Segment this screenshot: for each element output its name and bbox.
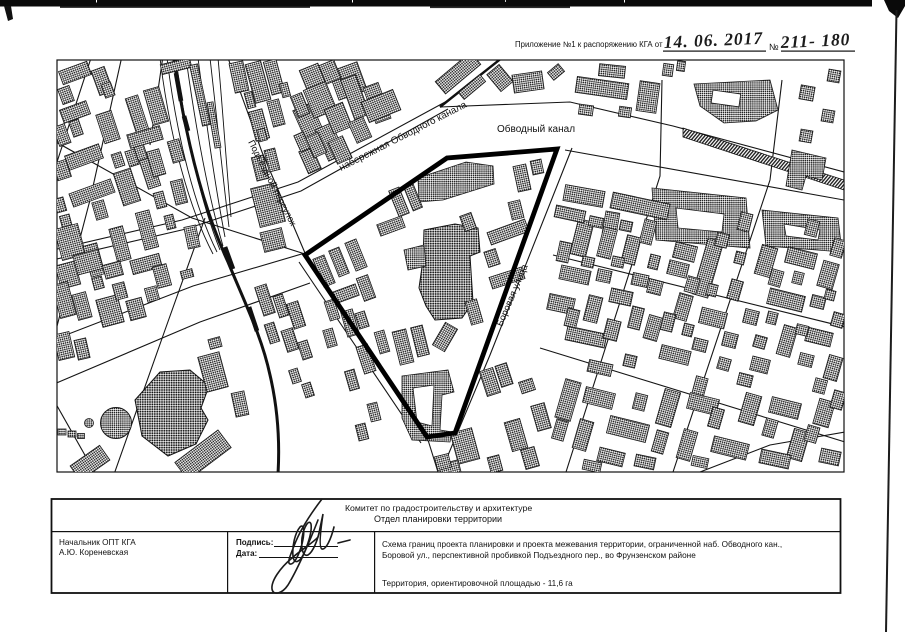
svg-text:Комитет по градостроительству: Комитет по градостроительству и архитект… — [345, 503, 532, 513]
svg-text:Боровой ул., перспективной про: Боровой ул., перспективной пробивкой Под… — [382, 551, 696, 560]
svg-text:211- 180: 211- 180 — [779, 29, 851, 52]
svg-text:Дата:: Дата: — [236, 549, 257, 558]
svg-text:А.Ю. Кореневская: А.Ю. Кореневская — [59, 548, 128, 557]
svg-text:Схема границ проекта планировк: Схема границ проекта планировки и проект… — [382, 540, 782, 549]
svg-text:№: № — [769, 42, 779, 52]
svg-text:Отдел планировки территории: Отдел планировки территории — [374, 514, 502, 524]
svg-text:Начальник ОПТ КГА: Начальник ОПТ КГА — [59, 538, 136, 547]
svg-text:Подпись:: Подпись: — [236, 538, 273, 547]
svg-text:Приложение №1 к распоряжению К: Приложение №1 к распоряжению КГА от — [515, 40, 663, 49]
svg-text:Обводный канал: Обводный канал — [497, 123, 575, 135]
svg-text:Территория, ориентировочной пл: Территория, ориентировочной площадью - 1… — [382, 579, 573, 588]
